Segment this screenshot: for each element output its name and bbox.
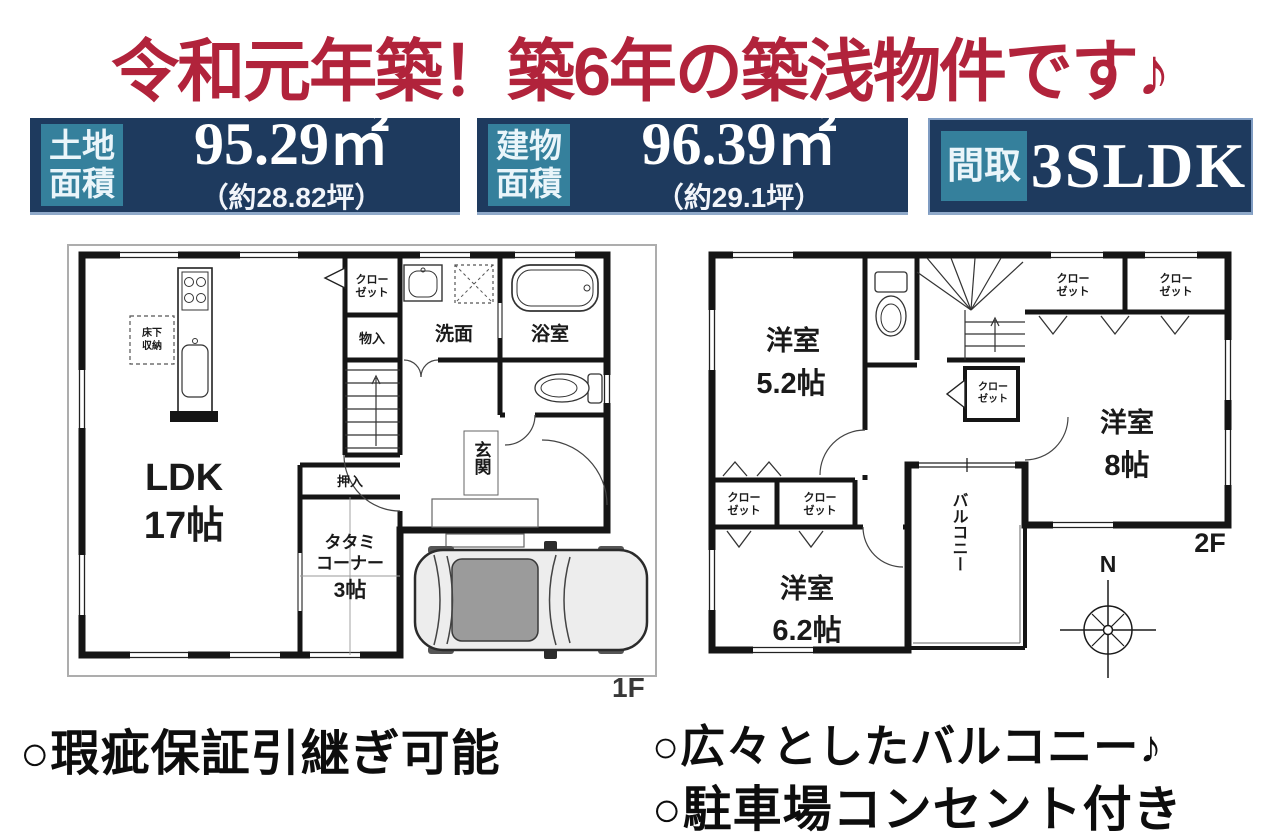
- land-area-value: 95.29㎡: [194, 114, 389, 174]
- toilet-icon-2f: [875, 272, 907, 336]
- western2-label: 洋室: [1100, 407, 1154, 438]
- floor-plan-2f: 洋室 5.2帖 洋室 8帖 洋室 6.2帖 クロー ゼット クロー ゼット クロ…: [703, 250, 1233, 685]
- floor-plan-1f: LDK 17帖 クロー ゼット 物入 洗面 浴室 玄関 押入 床下 収納 タタミ…: [66, 243, 658, 680]
- western2-size-label: 8帖: [1104, 449, 1149, 482]
- balcony-label: バルコニー: [950, 492, 969, 572]
- headline: 令和元年築！築6年の築浅物件です♪: [0, 16, 1280, 115]
- flyer-canvas: 令和元年築！築6年の築浅物件です♪ 土地 面積 95.29㎡ （約28.82坪）…: [0, 0, 1280, 832]
- closet-tr1-line2: ゼット: [1057, 284, 1090, 298]
- closet-tr2-line2: ゼット: [1160, 284, 1193, 298]
- car-top-view-icon: [415, 541, 647, 659]
- madori-main: 3SLDK: [1027, 134, 1251, 198]
- washroom-label: 洗面: [435, 322, 473, 345]
- madori-box: 間取 3SLDK: [928, 118, 1253, 215]
- feature-parking-outlet: ○駐車場コンセント付き: [652, 770, 1183, 832]
- storage-label: 物入: [359, 331, 385, 346]
- ldk-label: LDK: [145, 457, 224, 499]
- building-area-main: 96.39㎡ （約29.1坪）: [570, 114, 908, 216]
- closet-mid-line2: ゼット: [978, 392, 1008, 405]
- tatami-label-line1: タタミ: [325, 533, 376, 552]
- closet-l1-line2: ゼット: [728, 503, 761, 517]
- floor-label-2f: 2F: [1194, 528, 1226, 558]
- western1-label: 洋室: [766, 325, 820, 356]
- feature-balcony: ○広々としたバルコニー♪: [652, 710, 1163, 775]
- building-area-box: 建物 面積 96.39㎡ （約29.1坪）: [477, 118, 908, 215]
- tatami-size-label: 3帖: [334, 579, 367, 602]
- closet-label-line1: クロー: [356, 273, 389, 286]
- western3-size-label: 6.2帖: [772, 614, 841, 647]
- madori-label: 間取: [941, 131, 1027, 202]
- closet-l2-line1: クロー: [804, 491, 837, 504]
- closet-l2-line2: ゼット: [804, 503, 837, 517]
- bathtub-icon: [512, 265, 598, 311]
- floor-label-1f: 1F: [612, 672, 645, 704]
- tatami-label-line2: コーナー: [316, 554, 384, 573]
- closet-tr2-line1: クロー: [1160, 272, 1193, 285]
- ldk-size-label: 17帖: [144, 505, 224, 547]
- closet-mid-line1: クロー: [978, 381, 1008, 393]
- building-area-label-line2: 面積: [496, 165, 562, 203]
- land-area-tsubo: （約28.82坪）: [200, 176, 382, 216]
- compass-icon: [1060, 580, 1156, 678]
- building-area-label-line1: 建物: [496, 127, 562, 165]
- underfloor-label-line1: 床下: [142, 326, 162, 339]
- building-area-value: 96.39㎡: [642, 114, 837, 174]
- land-area-label-line2: 面積: [49, 165, 115, 203]
- bathroom-label: 浴室: [531, 322, 569, 345]
- western3-label: 洋室: [780, 573, 834, 604]
- land-area-box: 土地 面積 95.29㎡ （約28.82坪）: [30, 118, 460, 215]
- oshiire-label: 押入: [337, 474, 363, 489]
- land-area-label-line1: 土地: [49, 127, 115, 165]
- closet-tr1-line1: クロー: [1057, 272, 1090, 285]
- building-area-tsubo: （約29.1坪）: [656, 176, 823, 216]
- madori-value: 3SLDK: [1031, 134, 1247, 198]
- building-area-label: 建物 面積: [488, 124, 570, 206]
- western1-size-label: 5.2帖: [756, 367, 825, 400]
- washbasin-icon: [404, 265, 442, 301]
- toilet-icon-1f: [535, 374, 602, 403]
- closet-label-line2: ゼット: [356, 285, 389, 299]
- land-area-label: 土地 面積: [41, 124, 123, 206]
- entrance-label: 玄関: [472, 440, 492, 475]
- closet-l1-line1: クロー: [728, 491, 761, 504]
- info-bar: 土地 面積 95.29㎡ （約28.82坪） 建物 面積 96.39㎡ （約29…: [0, 118, 1280, 216]
- feature-warranty: ○瑕疵保証引継ぎ可能: [20, 714, 501, 785]
- underfloor-label-line2: 収納: [142, 339, 162, 352]
- land-area-main: 95.29㎡ （約28.82坪）: [123, 114, 460, 216]
- compass-north-label: N: [1100, 551, 1117, 577]
